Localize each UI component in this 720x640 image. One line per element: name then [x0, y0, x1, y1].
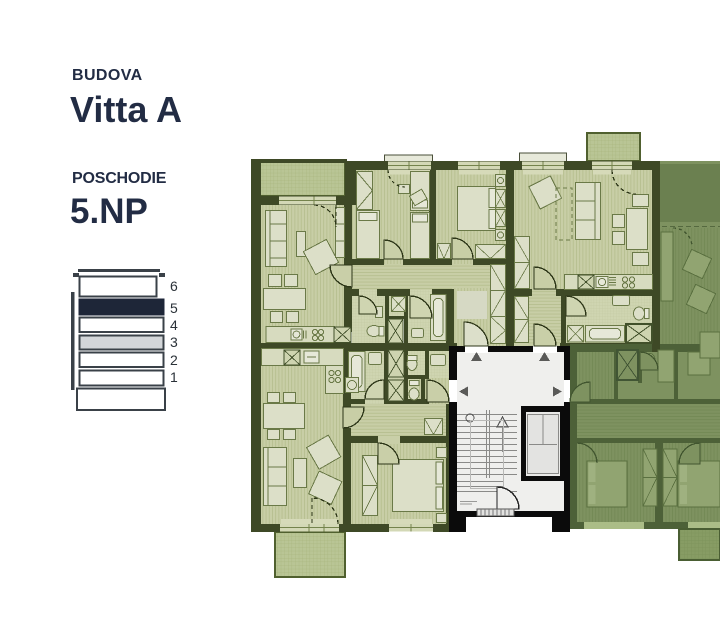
svg-text:4: 4 [170, 317, 178, 333]
svg-text:2: 2 [170, 352, 178, 368]
svg-text:6: 6 [170, 278, 178, 294]
svg-text:5: 5 [170, 300, 178, 316]
svg-text:1: 1 [170, 369, 178, 385]
svg-text:3: 3 [170, 334, 178, 350]
